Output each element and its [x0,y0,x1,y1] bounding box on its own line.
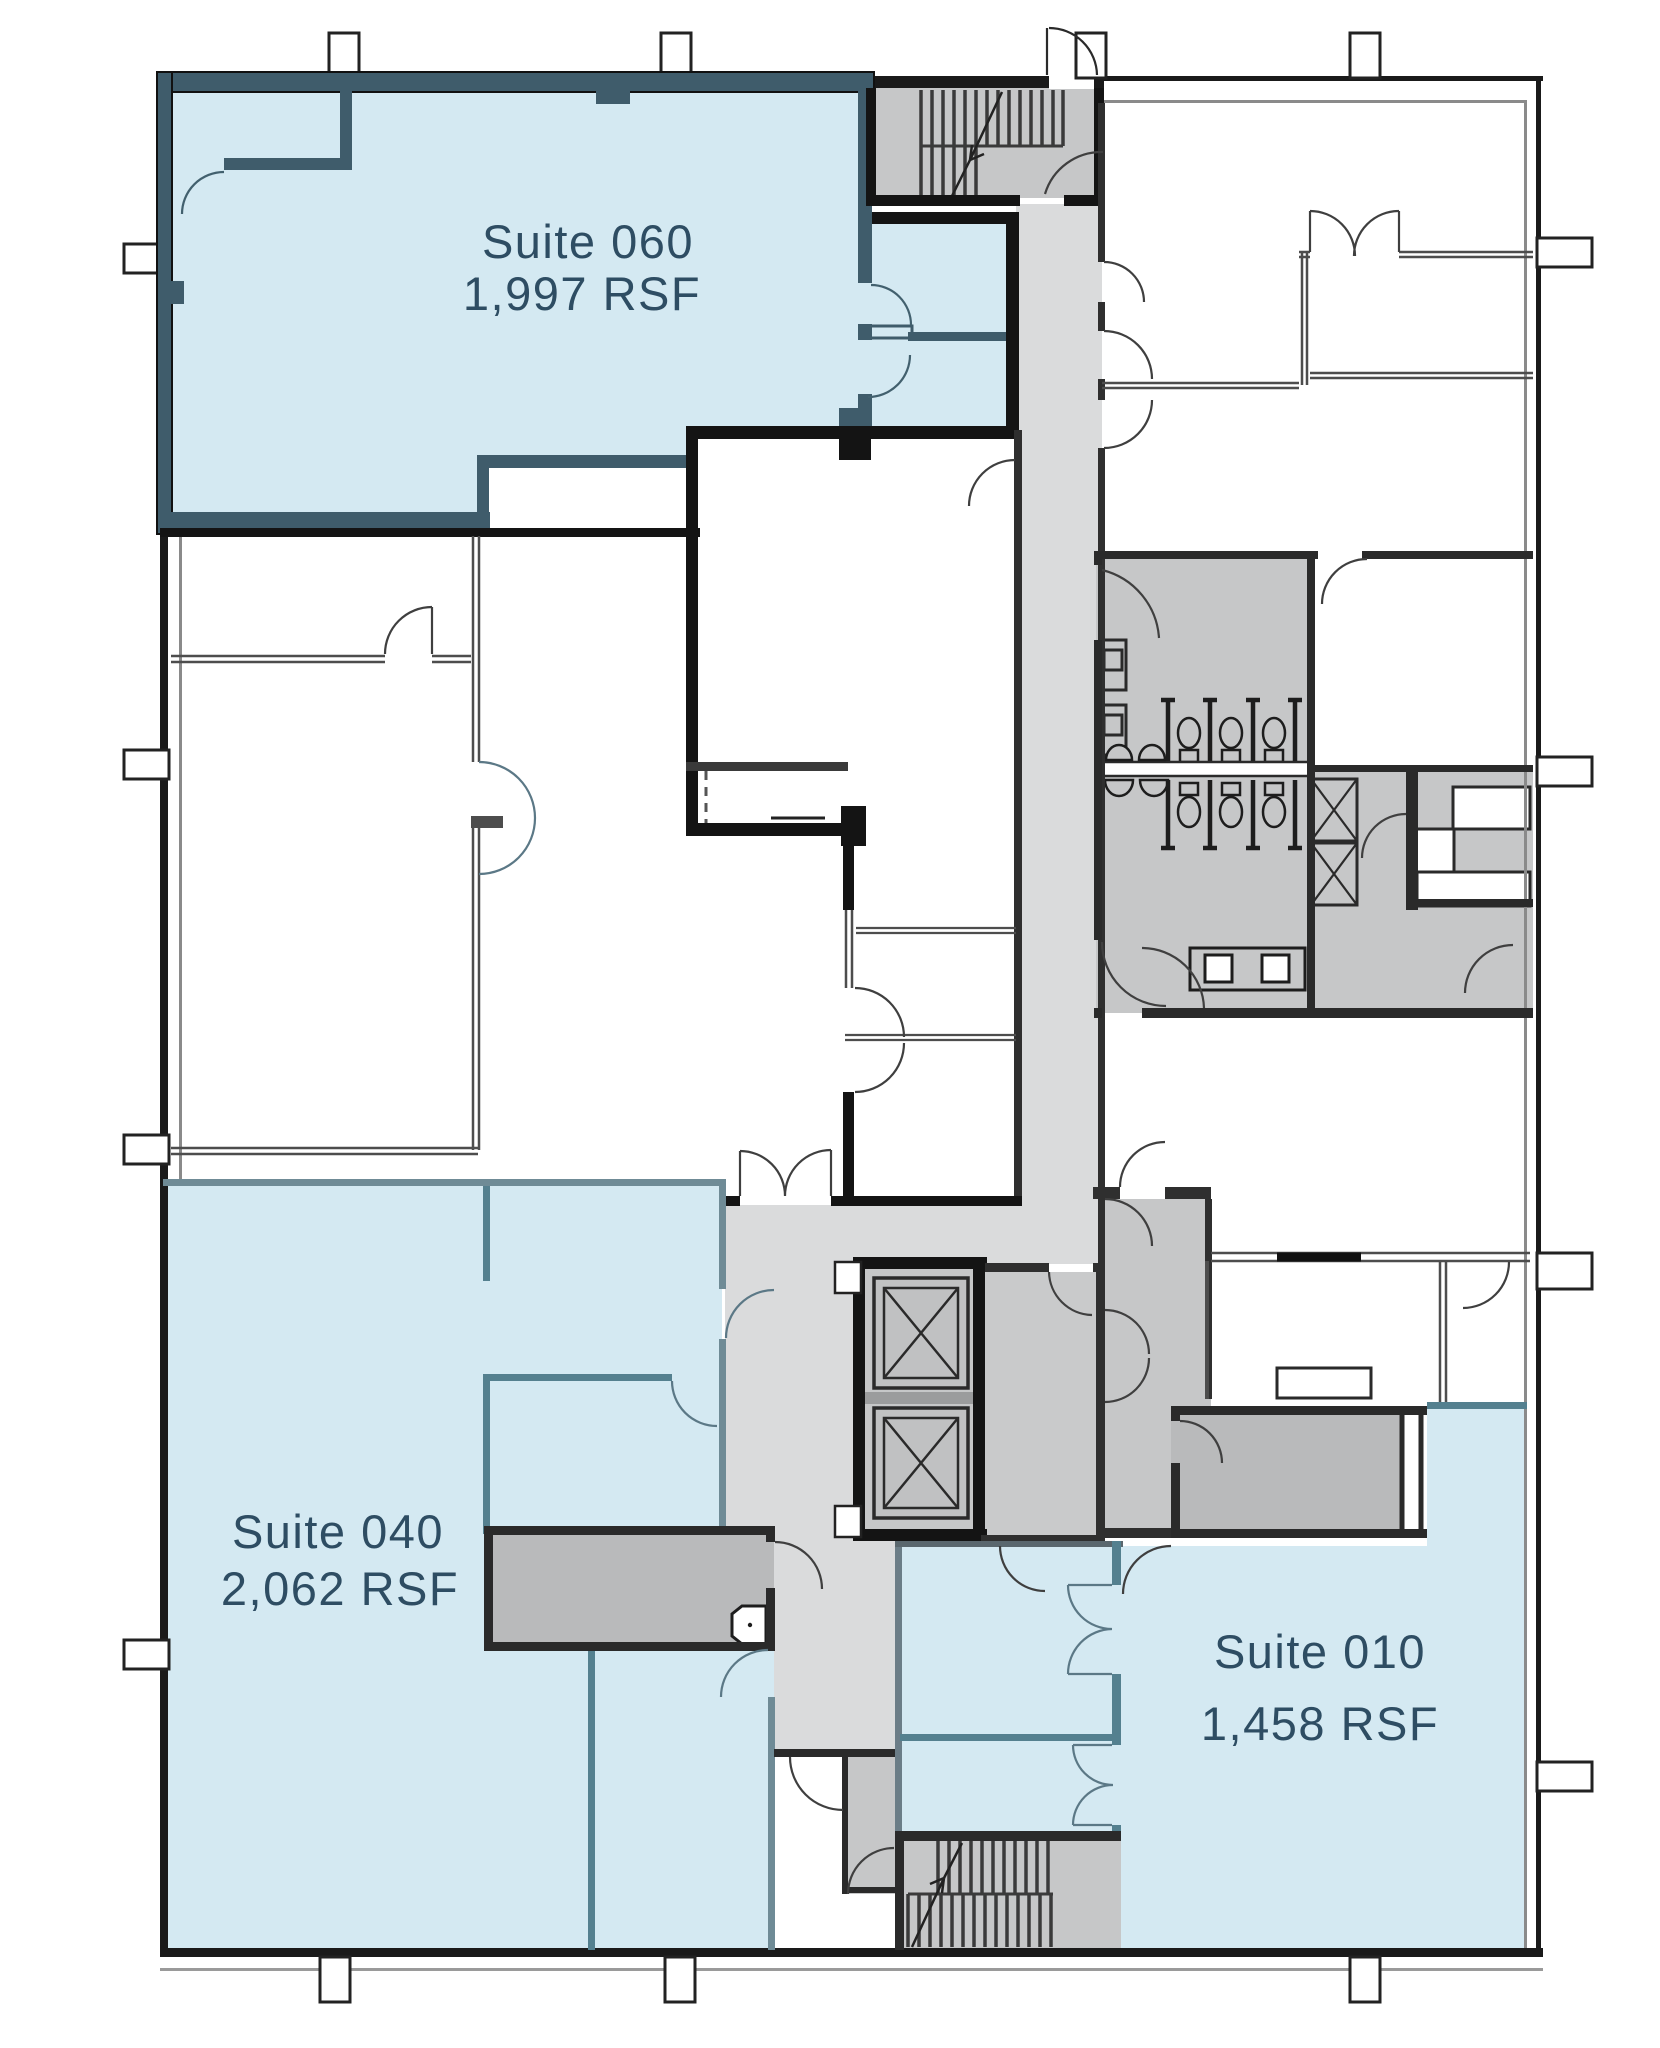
svg-text:1,458 RSF: 1,458 RSF [1201,1697,1439,1750]
svg-text:Suite 010: Suite 010 [1214,1625,1426,1678]
svg-text:Suite 060: Suite 060 [482,215,694,268]
svg-text:Suite 040: Suite 040 [232,1505,444,1558]
svg-text:1,997 RSF: 1,997 RSF [463,267,701,320]
svg-text:2,062 RSF: 2,062 RSF [221,1562,459,1615]
